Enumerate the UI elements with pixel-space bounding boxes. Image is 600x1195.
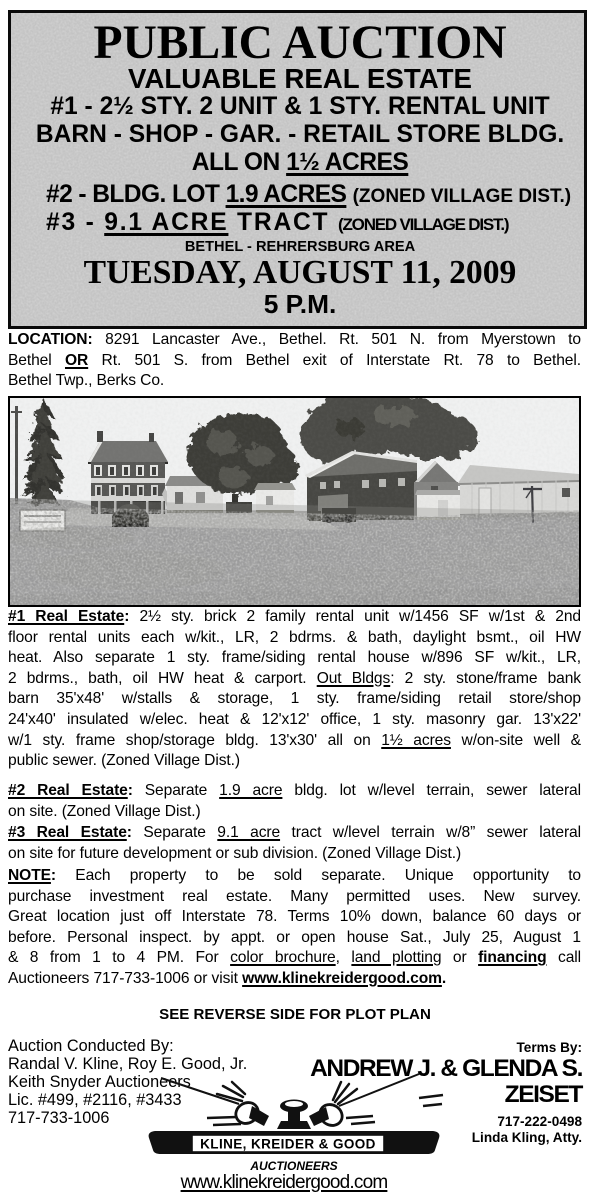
svg-text:KLINE, KREIDER & GOOD: KLINE, KREIDER & GOOD: [200, 1137, 376, 1152]
